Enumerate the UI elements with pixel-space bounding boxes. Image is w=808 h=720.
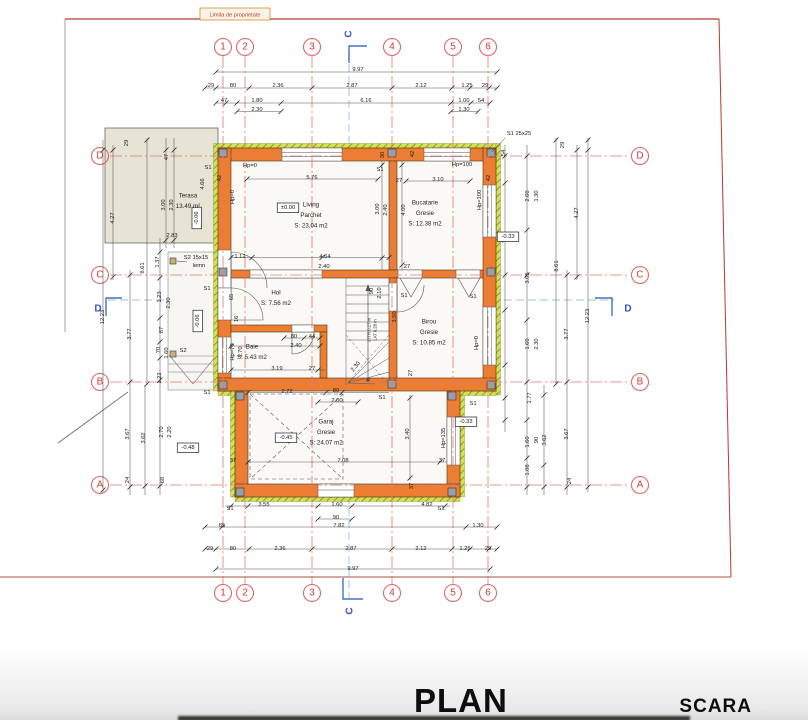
dim-s1: S1 [226,506,233,512]
dim-2-87: 2.87 [345,546,356,552]
dim-29: 29 [560,142,566,148]
level-garage-side: -0.33 [459,419,472,425]
dim-2-30: 2.30 [251,107,262,113]
dim-37: 37 [409,483,415,489]
axis-label-6-top: 6 [485,42,491,53]
axis-label-D-left: D [96,151,103,162]
dim-s1: S1 [204,165,211,171]
axis-label-C-right: C [636,270,643,281]
dim-7-08: 7.08 [337,458,348,464]
room-birou-line-2: S: 10.85 m2 [412,340,446,347]
dim-3-19: 3.19 [271,366,282,372]
section-c-marker-bottom [343,578,363,599]
parapet-living-window: Hp=0 [243,163,257,169]
dim-1-37: 1.37 [155,256,161,267]
dim-54: 54 [478,98,485,104]
dim-1-60: 1.60 [525,338,531,349]
plan-title: PLAN PARTER [414,682,651,720]
dim-90: 90 [534,437,540,443]
dim-2-00: 2.00 [331,398,342,404]
dim-3-62: 3.62 [141,432,147,443]
column-s2-wood [170,351,176,357]
parapet-garage-window: Hp=135 [441,428,447,448]
dim-44: 44 [309,334,316,340]
parapet-kitchen-window: Hp=100 [452,162,472,168]
dim-3-00: 3.00 [161,199,167,210]
dim-2-40: 2.40 [383,204,389,215]
dim-87: 87 [159,327,165,333]
dim-2-83: 2.83 [166,233,177,239]
room-garaj-line-1: Gresie [317,429,336,436]
property-limit-label: Limita de proprietate [210,13,261,19]
dim-s1: S1 [376,167,383,173]
dim-29: 29 [207,546,213,552]
section-letter-D-left: D [94,304,101,315]
section-d-marker-left [106,298,122,316]
dim-24: 24 [125,476,131,483]
axis-label-A-left: A [97,480,104,491]
dim-2-10: 2.10 [377,287,383,298]
dim-3-10: 3.10 [432,177,443,183]
room-birou-line-0: Birou [422,319,437,326]
garage-floor [235,391,460,497]
parapet-kitchen-window-east: Hp=100 [477,190,483,210]
dim-1-12: 1.12 [234,254,245,260]
dim-27: 27 [404,264,410,270]
wall-south-main [218,378,496,391]
dim-2-30: 2.30 [169,199,175,210]
dim-3-55: 3.55 [258,502,269,508]
dim-2-30: 2.30 [534,338,540,349]
column-s1 [448,392,456,400]
wall-garage-west [235,391,248,497]
room-garaj-line-0: Garaj [318,419,333,426]
dim-37: 37 [439,458,445,464]
opening-living-hol [250,270,322,278]
room-living-line-1: Parchet [300,212,322,219]
dim-80: 80 [230,546,236,552]
level-exterior: -0.48 [181,445,194,451]
dim-1-30: 1.30 [534,190,540,201]
dim-2-60: 2.60 [525,190,531,201]
dim-3-67: 3.67 [125,428,131,439]
stair-tread-note: LAT 0.28 m [373,319,378,341]
dim-1-80: 1.80 [251,98,262,104]
dim-3-77: 3.77 [127,328,133,339]
axis-label-1-top: 1 [220,42,226,53]
dim-37: 37 [230,458,236,464]
parapet-office-window: Hp=0 [474,336,480,350]
dim-1-30: 1.30 [472,523,483,529]
window-kitchen-north [424,148,470,161]
dim-2-87: 2.87 [346,83,357,89]
dim-2-12: 2.12 [415,83,426,89]
dim-42: 42 [486,175,492,181]
section-letter-D-right: D [624,304,631,315]
dim-1-77: 1.77 [527,392,533,403]
dim-2-72: 2.72 [281,389,292,395]
dim-s1: S1 [378,395,385,401]
parapet-bath-window: Hp=70 [230,343,236,360]
column-s1 [236,392,244,400]
dim-29: 29 [124,140,130,146]
dim-s2: S2 [179,348,186,354]
section-letter-C-top: C [344,30,355,37]
axis-label-5-bottom: 5 [450,588,456,599]
dim-2-30: 2.30 [166,297,172,308]
wall-bath-east [320,332,327,378]
dim-2-70: 2.70 [159,426,165,437]
dim-8-61: 8.61 [140,262,146,273]
dim-9-97: 9.97 [352,67,363,73]
dim-4-82: 4.82 [421,502,432,508]
axis-label-5-top: 5 [450,42,456,53]
room-birou-line-1: Gresie [420,329,439,336]
dim-3-00: 3.00 [375,203,381,214]
level-east-side: -0.33 [501,234,514,240]
dim-4-66: 4.66 [200,178,206,189]
dim-42: 42 [217,175,223,181]
dim-68: 68 [160,477,166,483]
column-s2-material: lemn [193,263,206,269]
axis-label-3-top: 3 [309,42,315,53]
dim-3-05: 3.05 [525,272,531,283]
level-living: ±0.00 [281,205,295,211]
dim-5-76: 5.76 [306,175,317,181]
dim-4-64: 4.64 [319,254,331,260]
room-bucatarie-line-0: Bucatarie [412,200,439,207]
level-porch: -0.06 [195,314,201,327]
dim-4-00: 4.00 [401,204,407,215]
window-garage-south [318,484,354,497]
dim-2-12: 2.12 [415,546,426,552]
dim-9-97: 9.97 [347,566,358,572]
dim-s1: S1 [203,390,210,396]
dim-3-40: 3.40 [405,428,411,439]
door-kitchen-opening [398,270,422,278]
dim-s1: S1 [469,294,476,300]
floor-plan-sheet: Limita de proprietate [0,0,808,720]
room-hol-line-1: S: 7.56 m2 [261,300,291,307]
dim-29: 29 [208,83,214,89]
room-terasa-line-0: Terasa [179,193,198,200]
dim-1-08: 1.08 [525,464,531,475]
room-living-line-0: Living [303,202,320,209]
dim-80: 80 [230,83,236,89]
dim-80: 80 [291,334,297,340]
door-bath-opening [292,325,314,332]
dim-90: 90 [369,288,375,294]
dim-4-27: 4.27 [110,212,116,223]
dim-2-20: 2.20 [167,426,173,437]
dim-1-60: 1.60 [331,502,342,508]
dim-12-23: 12.23 [585,309,591,324]
section-letter-C-bottom: C [345,607,356,614]
dim-s1: S1 [400,293,407,299]
axis-label-1-bottom: 1 [220,588,226,599]
dim-1-22: 1.22 [157,372,163,383]
dim-80: 80 [333,388,339,394]
axis-label-A-right: A [637,480,644,491]
dim-30: 30 [380,152,386,158]
dim-16: 16 [234,316,240,322]
axis-label-B-left: B [97,377,104,388]
dim-3-77: 3.77 [564,328,570,339]
dim-47: 47 [221,98,227,104]
axis-label-2-top: 2 [242,42,248,53]
door-office-opening [389,283,397,311]
column-s1 [236,488,244,496]
window-office-east [483,307,496,365]
dim-27: 27 [309,366,315,372]
window-kitchen-east [483,185,496,237]
dim-2-40: 2.40 [318,264,329,270]
dim-90: 90 [333,515,339,521]
dim-1-30: 1.30 [458,107,469,113]
drawing-title: PLAN PARTER SCARA 1:100 [414,682,808,720]
dim-2-40: 2.40 [290,343,301,349]
dim-s1: S1 [203,286,210,292]
dim-1-00: 1.00 [458,98,469,104]
dim-1-25: 1.25 [461,83,472,89]
column-type-s2-label: S2 15x15 [184,255,209,261]
axis-label-C-left: C [96,270,103,281]
room-baie-line-0: Baie [246,344,259,351]
dim-85: 85 [219,523,225,529]
axis-label-4-bottom: 4 [389,588,395,599]
dim-4-27: 4.27 [574,207,580,218]
plan-scale: SCARA 1:100 [679,696,808,720]
floor-plan-drawing: Limita de proprietate [0,0,808,720]
room-baie-line-1: S: 5.43 m2 [237,354,267,361]
room-garaj-line-2: S: 24.07 m2 [309,440,343,447]
dim-1-60: 1.60 [164,347,170,358]
column-s1 [448,488,456,496]
dim-27: 27 [408,370,414,376]
dim-3-67: 3.67 [564,428,570,439]
axis-label-B-right: B [637,377,644,388]
dim-1-60: 1.60 [525,436,531,447]
level-terasa: -0.06 [194,211,200,224]
room-living-line-2: S: 23.04 m2 [294,223,328,230]
room-terasa-line-1: 13.49 m² [176,203,200,210]
room-bucatarie-line-2: S: 12.38 m2 [408,221,442,228]
section-c-marker-top [349,46,367,63]
door-kitchen-opening-2 [456,270,480,278]
dim-3-50: 3.50 [392,311,398,322]
dim-1-23: 1.23 [157,291,163,302]
door-entry-opening [218,288,231,320]
column-s2-wood [170,258,176,264]
dim-7-82: 7.82 [333,523,344,529]
level-garaj: -0.45 [279,435,292,441]
dim-1-25: 1.25 [459,546,470,552]
parapet-terasa-door: Hp=0 [230,190,236,204]
axis-label-4-top: 4 [389,42,395,53]
dim-65: 65 [229,294,235,300]
dim-24: 24 [567,477,573,484]
axis-label-D-right: D [636,151,643,162]
dim-s1: S1 [469,401,476,407]
dim-47: 47 [164,154,170,160]
section-d-marker-right [595,298,612,316]
stair-riser-note: 17TR 0.17 m [367,317,372,342]
dim-42: 42 [410,151,416,157]
dim-29: 29 [482,83,488,89]
dim-6-16: 6.16 [360,98,371,104]
dim-70: 70 [156,347,162,353]
dim-27: 27 [396,178,402,184]
room-hol-line-0: Hol [271,290,280,297]
dim-2-36: 2.36 [274,546,285,552]
dim-54: 54 [501,149,507,156]
dim-8-61: 8.61 [554,260,560,271]
dim-29: 29 [485,546,491,552]
column-type-s1-label: S1 25x25 [507,131,532,137]
dim-2-36: 2.36 [272,83,283,89]
axis-label-6-bottom: 6 [485,588,491,599]
room-bucatarie-line-1: Gresie [416,210,435,217]
axis-label-3-bottom: 3 [309,588,315,599]
dim-s1: S1 [437,506,444,512]
dim-3-62: 3.62 [542,434,548,445]
axis-label-2-bottom: 2 [242,588,248,599]
